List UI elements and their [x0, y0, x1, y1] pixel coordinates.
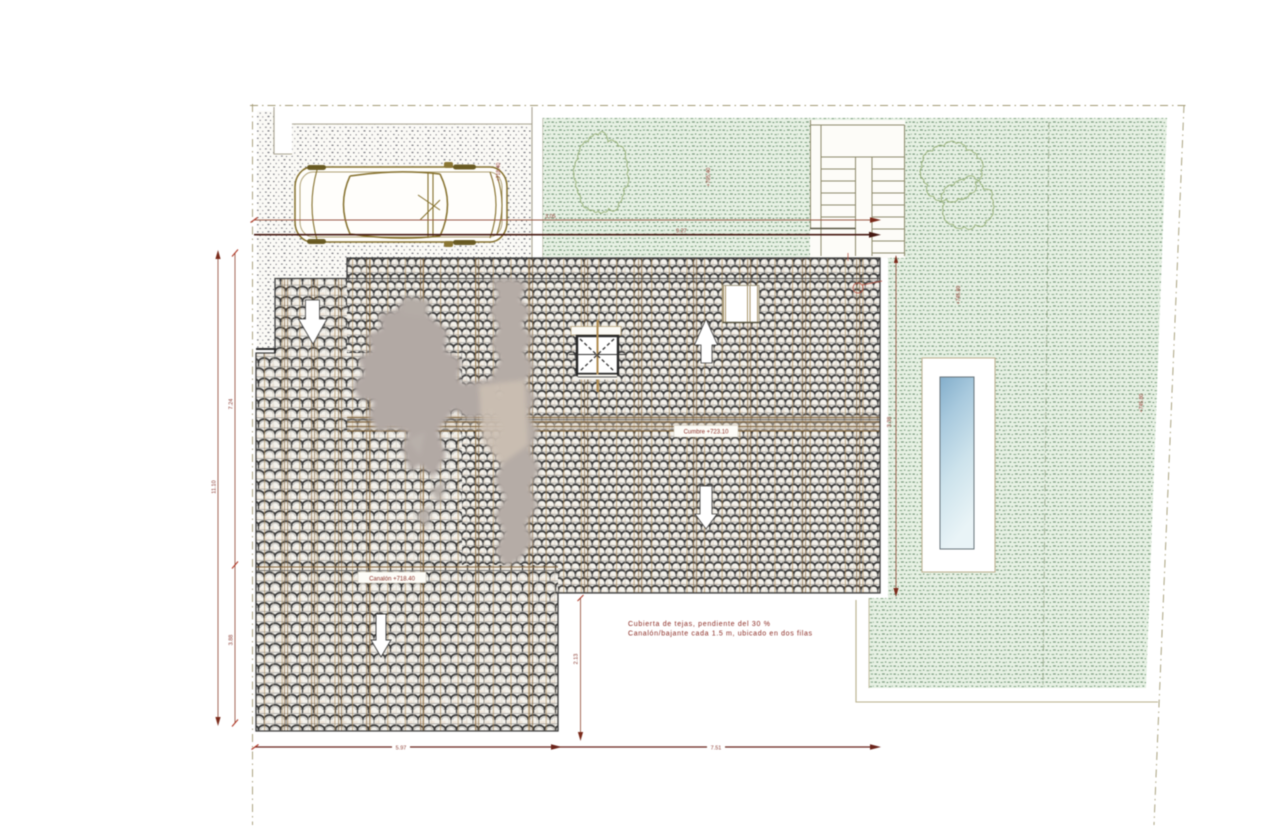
- svg-text:Canalón/bajante cada 1.5 m, ub: Canalón/bajante cada 1.5 m, ubicado en d…: [628, 631, 813, 638]
- svg-text:7.51: 7.51: [711, 746, 722, 752]
- svg-text:11.10: 11.10: [212, 480, 218, 493]
- svg-text:5.97: 5.97: [396, 746, 407, 752]
- svg-text:2.13: 2.13: [574, 654, 580, 665]
- svg-text:3.88: 3.88: [229, 635, 235, 646]
- svg-text:+718.40: +718.40: [496, 162, 502, 181]
- svg-text:Cubierta de tejas, pendiente d: Cubierta de tejas, pendiente del 30 %: [628, 621, 770, 628]
- svg-text:7.24: 7.24: [229, 399, 235, 410]
- svg-text:Canalón +718.40: Canalón +718.40: [369, 577, 416, 583]
- svg-text:+705.40: +705.40: [706, 167, 712, 186]
- svg-text:Cumbre +723.10: Cumbre +723.10: [684, 430, 730, 436]
- svg-text:+745.80: +745.80: [1139, 393, 1145, 412]
- svg-text:9.27: 9.27: [676, 229, 687, 235]
- svg-text:+745.80: +745.80: [956, 285, 962, 304]
- svg-text:3.05: 3.05: [545, 214, 556, 220]
- svg-text:3.38: 3.38: [887, 417, 893, 428]
